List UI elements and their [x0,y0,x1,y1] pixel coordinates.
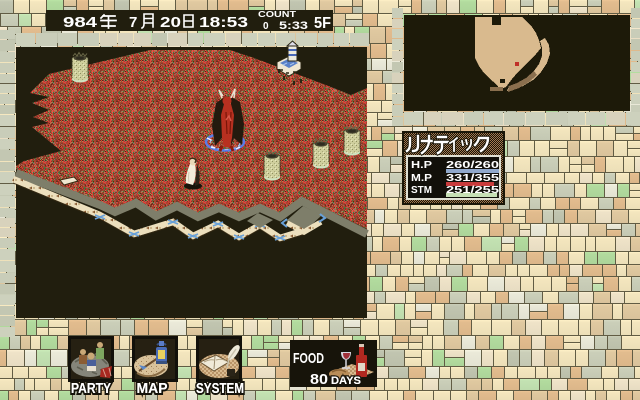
svg-text:7: 7 [129,14,137,31]
svg-text:H.P: H.P [411,160,432,171]
svg-text:18:53: 18:53 [199,14,248,31]
svg-text:5F: 5F [314,15,331,32]
svg-text:20: 20 [160,14,181,31]
svg-text:984: 984 [63,14,98,31]
svg-text:STM: STM [411,185,432,196]
svg-text:FOOD: FOOD [293,350,324,367]
svg-text:5:33: 5:33 [279,20,308,32]
svg-text:SYSTEM: SYSTEM [196,380,244,397]
svg-text:PARTY: PARTY [71,380,111,397]
svg-text:0: 0 [263,21,269,32]
svg-text:COUNT: COUNT [258,9,297,19]
svg-text:80: 80 [310,371,328,388]
svg-text:MAP: MAP [137,380,168,397]
svg-text:DAYS: DAYS [331,375,361,387]
svg-text:M.P: M.P [411,173,432,184]
